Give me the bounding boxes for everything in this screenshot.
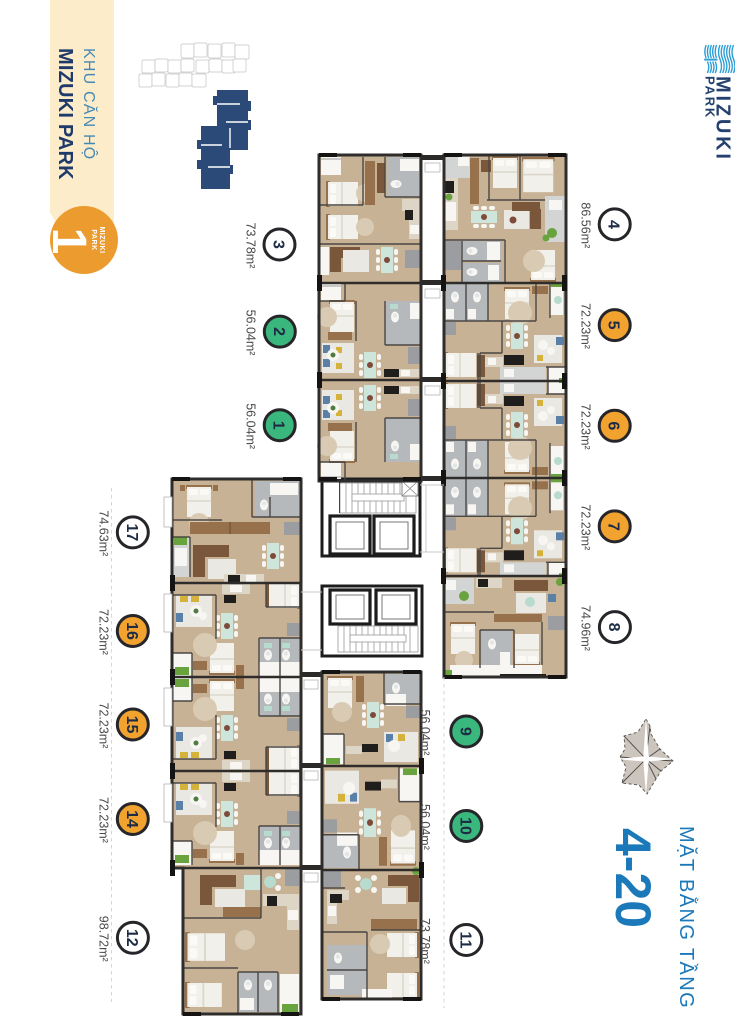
svg-text:56.04m²: 56.04m² [418,804,432,850]
svg-text:74.96m²: 74.96m² [579,605,593,651]
svg-text:14: 14 [123,810,140,828]
svg-text:98.72m²: 98.72m² [97,916,111,962]
svg-text:1: 1 [270,421,287,430]
svg-text:1: 1 [42,228,95,255]
svg-text:72.23m²: 72.23m² [97,609,111,655]
svg-text:PARK: PARK [90,229,97,250]
svg-text:7: 7 [605,522,622,531]
svg-text:72.23m²: 72.23m² [97,797,111,843]
svg-text:4: 4 [605,220,622,229]
svg-text:72.23m²: 72.23m² [579,303,593,349]
svg-text:PARK: PARK [703,76,718,119]
svg-text:KHU CĂN HỘ: KHU CĂN HỘ [80,48,99,160]
svg-text:10: 10 [456,817,473,835]
svg-text:MIZUKI: MIZUKI [98,226,105,253]
svg-text:17: 17 [123,524,140,542]
svg-text:72.23m²: 72.23m² [579,504,593,550]
svg-text:5: 5 [605,321,622,330]
svg-text:74.63m²: 74.63m² [97,510,111,556]
svg-text:56.04m²: 56.04m² [418,710,432,756]
svg-text:MIZUKI PARK: MIZUKI PARK [54,48,76,180]
svg-text:86.56m²: 86.56m² [579,202,593,248]
svg-text:72.23m²: 72.23m² [97,703,111,749]
svg-text:15: 15 [123,716,140,734]
svg-text:9: 9 [456,727,473,736]
svg-text:56.04m²: 56.04m² [244,310,258,356]
svg-text:3: 3 [270,240,287,249]
svg-text:2: 2 [270,327,287,336]
svg-text:8: 8 [605,623,622,632]
svg-text:4-20: 4-20 [605,828,661,928]
svg-text:72.23m²: 72.23m² [579,404,593,450]
svg-text:56.04m²: 56.04m² [244,403,258,449]
svg-text:16: 16 [123,622,140,640]
svg-text:6: 6 [605,421,622,430]
svg-text:12: 12 [123,929,140,947]
svg-text:11: 11 [456,932,473,949]
svg-text:73.78m²: 73.78m² [418,918,432,964]
svg-text:MẶT BẰNG TẦNG: MẶT BẰNG TẦNG [675,826,699,1009]
svg-text:73.78m²: 73.78m² [244,223,258,269]
